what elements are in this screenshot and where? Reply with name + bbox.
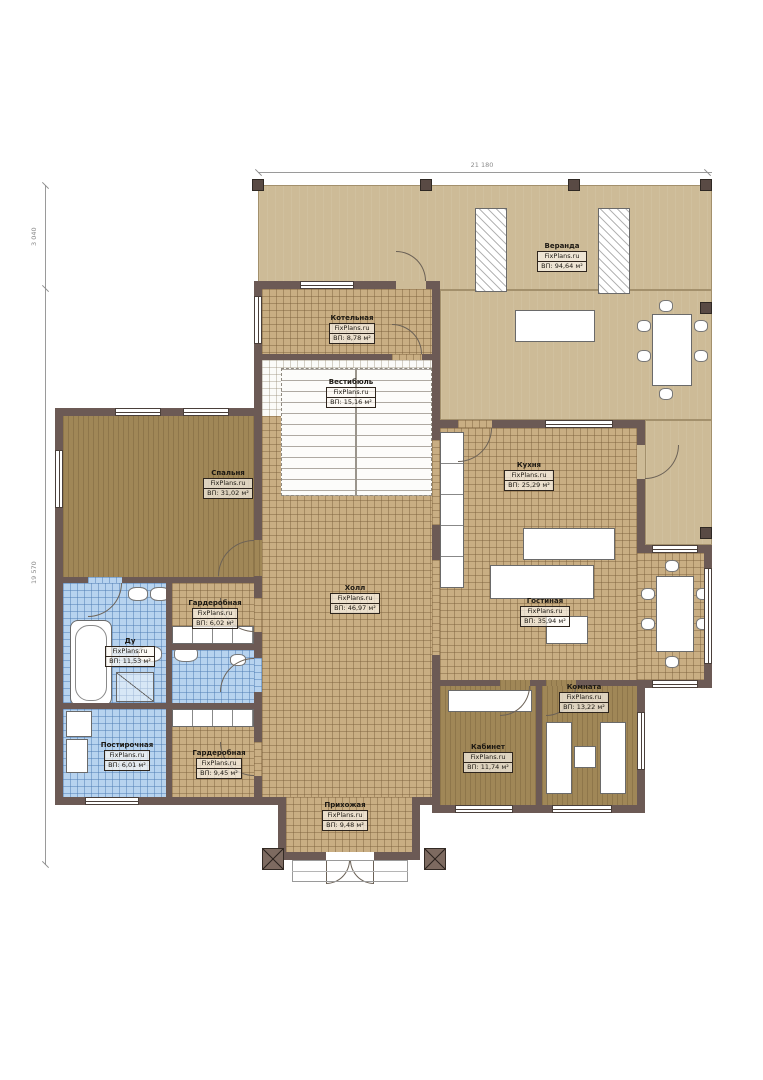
- wall-segment: [432, 281, 440, 428]
- area-badge: FixPlans.ruВП: 9,45 м²: [196, 758, 242, 779]
- wall-segment: [166, 703, 172, 797]
- room-name: Веранда: [527, 242, 597, 250]
- window: [704, 568, 712, 664]
- chair: [659, 300, 673, 312]
- room-name: Ду: [98, 637, 162, 645]
- room-name: Гостиная: [510, 597, 580, 605]
- area-value: ВП: 31,02 м²: [204, 489, 252, 498]
- room-label-boiler: Котельная FixPlans.ruВП: 8,78 м²: [317, 314, 387, 344]
- area-badge: FixPlans.ruВП: 31,02 м²: [203, 478, 253, 499]
- sink: [128, 587, 148, 601]
- dining-table: [652, 314, 692, 386]
- window: [552, 805, 612, 813]
- wall-segment: [412, 797, 440, 805]
- floor-plan-canvas: 21 180 3 040 19 570: [0, 0, 763, 1080]
- chair: [694, 320, 708, 332]
- room-label-wardrobe-bottom: Гардеробная FixPlans.ruВП: 9,45 м²: [182, 749, 256, 779]
- column-x-icon: [425, 849, 445, 869]
- wall-segment: [278, 852, 326, 860]
- door-opening: [432, 440, 440, 525]
- area-value: ВП: 46,97 м²: [331, 604, 379, 613]
- area-value: ВП: 8,78 м²: [330, 334, 374, 343]
- column-x-icon: [263, 849, 283, 869]
- dim-label-left-upper: 3 040: [30, 206, 38, 268]
- room-label-vestibule: Вестибюль FixPlans.ruВП: 15,16 м²: [314, 378, 388, 408]
- column-post: [568, 179, 580, 191]
- fixplans-badge: FixPlans.ru: [323, 811, 367, 821]
- dim-label-left-lower: 19 570: [30, 538, 38, 608]
- chair: [637, 350, 651, 362]
- room-label-room: Комната FixPlans.ruВП: 13,22 м²: [549, 683, 619, 713]
- area-badge: FixPlans.ruВП: 11,74 м²: [463, 752, 513, 773]
- fixplans-badge: FixPlans.ru: [464, 753, 512, 763]
- wall-segment: [536, 680, 542, 805]
- washer: [66, 711, 92, 737]
- area-badge: FixPlans.ruВП: 6,01 м²: [104, 750, 150, 771]
- room-name: Холл: [320, 584, 390, 592]
- area-value: ВП: 9,45 м²: [197, 769, 241, 778]
- room-name: Гардеробная: [182, 749, 256, 757]
- area-badge: FixPlans.ruВП: 13,22 м²: [559, 692, 609, 713]
- veranda-table: [515, 310, 595, 342]
- fixplans-badge: FixPlans.ru: [204, 479, 252, 489]
- dim-label-top: 21 180: [452, 161, 512, 169]
- window: [652, 680, 698, 688]
- bed: [600, 722, 626, 794]
- window: [183, 408, 229, 416]
- area-value: ВП: 25,29 м²: [505, 481, 553, 490]
- wall-segment: [637, 420, 645, 553]
- room-label-veranda: Веранда FixPlans.ruВП: 94,64 м²: [527, 242, 597, 272]
- fixplans-badge: FixPlans.ru: [197, 759, 241, 769]
- column-post: [252, 179, 264, 191]
- room-name: Котельная: [317, 314, 387, 322]
- window: [55, 450, 63, 508]
- room-label-entry: Прихожая FixPlans.ruВП: 9,48 м²: [310, 801, 380, 831]
- window: [85, 797, 139, 805]
- window: [254, 296, 262, 344]
- porch-step-line: [292, 871, 408, 872]
- chair: [641, 588, 655, 600]
- lounger: [475, 208, 507, 292]
- door-opening: [432, 560, 440, 655]
- room-name: Гардеробная: [178, 599, 252, 607]
- chair: [641, 618, 655, 630]
- window: [545, 420, 613, 428]
- chair: [665, 560, 679, 572]
- shower-tray: [116, 672, 154, 702]
- dimension-line-top: [258, 172, 712, 173]
- area-value: ВП: 6,02 м²: [193, 619, 237, 628]
- door-opening: [396, 281, 426, 289]
- room-label-bath: Ду FixPlans.ruВП: 11,53 м²: [98, 637, 162, 667]
- fixplans-badge: FixPlans.ru: [327, 388, 375, 398]
- area-value: ВП: 11,53 м²: [106, 657, 154, 666]
- door-opening: [458, 420, 492, 428]
- area-badge: FixPlans.ruВП: 46,97 м²: [330, 593, 380, 614]
- room-name: Кухня: [494, 461, 564, 469]
- room-name: Кабинет: [453, 743, 523, 751]
- wall-segment: [412, 797, 420, 860]
- room-label-living: Гостиная FixPlans.ruВП: 35,94 м²: [510, 597, 580, 627]
- area-value: ВП: 15,16 м²: [327, 398, 375, 407]
- area-badge: FixPlans.ruВП: 94,64 м²: [537, 251, 587, 272]
- window: [637, 712, 645, 770]
- chair: [665, 656, 679, 668]
- room-name: Спальня: [193, 469, 263, 477]
- area-value: ВП: 6,01 м²: [105, 761, 149, 770]
- fixplans-badge: FixPlans.ru: [193, 609, 237, 619]
- room-label-hall: Холл FixPlans.ruВП: 46,97 м²: [320, 584, 390, 614]
- room-name: Постирочная: [90, 741, 164, 749]
- room-name: Комната: [549, 683, 619, 691]
- chair: [694, 350, 708, 362]
- window: [455, 805, 513, 813]
- area-value: ВП: 94,64 м²: [538, 262, 586, 271]
- fixplans-badge: FixPlans.ru: [105, 751, 149, 761]
- column-post: [700, 302, 712, 314]
- door-opening: [254, 658, 262, 692]
- area-value: ВП: 35,94 м²: [521, 617, 569, 626]
- kitchen-island: [523, 528, 615, 560]
- fixplans-badge: FixPlans.ru: [106, 647, 154, 657]
- area-badge: FixPlans.ruВП: 8,78 м²: [329, 323, 375, 344]
- area-badge: FixPlans.ruВП: 35,94 м²: [520, 606, 570, 627]
- door-opening: [254, 540, 262, 576]
- area-badge: FixPlans.ruВП: 15,16 м²: [326, 387, 376, 408]
- window: [300, 281, 354, 289]
- area-value: ВП: 13,22 м²: [560, 703, 608, 712]
- chair: [637, 320, 651, 332]
- column-post: [700, 527, 712, 539]
- room-label-office: Кабинет FixPlans.ruВП: 11,74 м²: [453, 743, 523, 773]
- room-label-kitchen: Кухня FixPlans.ruВП: 25,29 м²: [494, 461, 564, 491]
- window: [652, 545, 698, 553]
- wall-segment: [166, 644, 254, 650]
- room-name: Прихожая: [310, 801, 380, 809]
- door-opening: [637, 445, 645, 479]
- lounger: [598, 208, 630, 294]
- door-opening: [392, 354, 422, 360]
- bed: [546, 722, 572, 794]
- window: [115, 408, 161, 416]
- area-badge: FixPlans.ruВП: 25,29 м²: [504, 470, 554, 491]
- fixplans-badge: FixPlans.ru: [505, 471, 553, 481]
- side-table: [574, 746, 596, 768]
- area-badge: FixPlans.ruВП: 9,48 м²: [322, 810, 368, 831]
- wall-segment: [254, 797, 286, 805]
- column-post-crossed: [262, 848, 284, 870]
- shelf-unit: [172, 709, 254, 727]
- room-name: Вестибюль: [314, 378, 388, 386]
- area-value: ВП: 9,48 м²: [323, 821, 367, 830]
- room-label-bedroom: Спальня FixPlans.ruВП: 31,02 м²: [193, 469, 263, 499]
- area-badge: FixPlans.ruВП: 6,02 м²: [192, 608, 238, 629]
- sofa: [490, 565, 594, 599]
- column-post: [420, 179, 432, 191]
- column-post-crossed: [424, 848, 446, 870]
- room-label-wardrobe-top: Гардеробная FixPlans.ruВП: 6,02 м²: [178, 599, 252, 629]
- dining-table: [656, 576, 694, 652]
- wall-segment: [374, 852, 420, 860]
- fixplans-badge: FixPlans.ru: [560, 693, 608, 703]
- fixplans-badge: FixPlans.ru: [331, 594, 379, 604]
- chair: [659, 388, 673, 400]
- water-heater: [66, 739, 88, 773]
- area-badge: FixPlans.ruВП: 11,53 м²: [105, 646, 155, 667]
- wall-segment: [166, 577, 172, 709]
- fixplans-badge: FixPlans.ru: [538, 252, 586, 262]
- room-label-laundry: Постирочная FixPlans.ruВП: 6,01 м²: [90, 741, 164, 771]
- column-post: [700, 179, 712, 191]
- wall-segment: [63, 703, 254, 709]
- fixplans-badge: FixPlans.ru: [330, 324, 374, 334]
- fixplans-badge: FixPlans.ru: [521, 607, 569, 617]
- door-opening: [254, 598, 262, 632]
- area-value: ВП: 11,74 м²: [464, 763, 512, 772]
